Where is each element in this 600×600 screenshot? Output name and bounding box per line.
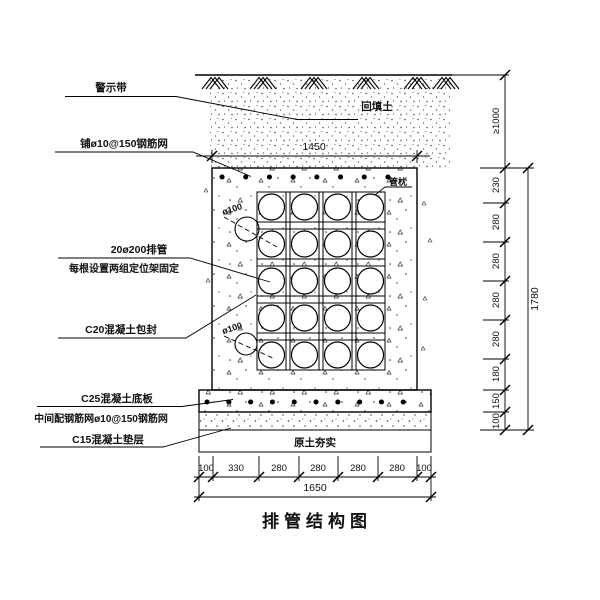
dim-right-seg: 280	[491, 331, 502, 347]
backfill-label: 回填土	[361, 100, 393, 113]
compacted-soil-label: 原土夯实	[294, 436, 336, 449]
dim-right-seg: 100	[491, 413, 502, 429]
pipe-circle	[259, 268, 285, 294]
dim-right-seg: 280	[491, 253, 502, 269]
dim-right-seg: 280	[491, 214, 502, 230]
pipe-circle	[292, 342, 318, 368]
dim-cover-depth: ≥1000	[491, 108, 502, 134]
dim-bottom-seg: 100	[416, 463, 432, 474]
pipe-circle	[292, 231, 318, 257]
callout-pipes-line2: 每根设置两组定位架固定	[69, 262, 179, 275]
dim-right-seg: 180	[491, 366, 502, 382]
pipe-circle	[259, 342, 285, 368]
callout-warning-tape: 警示带	[94, 81, 127, 94]
pipe-circle	[325, 231, 351, 257]
compacted-soil: 原土夯实	[199, 430, 431, 452]
dim-bottom-seg: 280	[389, 463, 405, 474]
pipe-circle	[259, 194, 285, 220]
pipe-circle	[292, 194, 318, 220]
base-slab	[199, 390, 431, 412]
callout-pipes-line1: 20ø200排管	[111, 243, 168, 256]
dim-right-seg: 230	[491, 177, 502, 193]
dimension-right: ≥1000 230 280 280 280 280 180 150 100 17…	[452, 70, 541, 435]
callout-top-mesh: 铺ø10@150钢筋网	[80, 137, 168, 150]
dim-top-width: 1450	[302, 141, 326, 153]
dim-bottom-seg: 280	[350, 463, 366, 474]
pipe-circle	[358, 231, 384, 257]
pipe-circle	[358, 268, 384, 294]
pipe-circle	[325, 342, 351, 368]
callout-base-slab-line1: C25混凝土底板	[81, 392, 153, 405]
dim-bottom-total: 1650	[303, 482, 327, 494]
pipe-circle	[259, 305, 285, 331]
dim-right-seg: 280	[491, 292, 502, 308]
dim-bottom-seg: 100	[198, 463, 214, 474]
dim-bottom-seg: 330	[228, 463, 244, 474]
pipe-circle	[358, 342, 384, 368]
dimension-bottom: 100 330 280 280 280 280 100 1650	[194, 456, 436, 502]
pipe-pillow-label: 管枕	[389, 176, 407, 187]
pipe-trench-structure-drawing: ø100 ø100 管枕 原土夯实 回填土 1450 100 330 280 2…	[0, 0, 600, 600]
pipe-circle	[325, 194, 351, 220]
pipe-circle	[292, 305, 318, 331]
phi100-circle-upper	[235, 217, 259, 241]
cushion-layer	[199, 412, 431, 430]
dim-bottom-seg: 280	[310, 463, 326, 474]
pipe-circle	[358, 194, 384, 220]
backfill-texture	[210, 76, 450, 168]
pipe-circle	[325, 268, 351, 294]
callout-base-slab-line2: 中间配钢筋网ø10@150钢筋网	[34, 412, 168, 425]
pipe-circle	[259, 231, 285, 257]
pipe-circle	[325, 305, 351, 331]
callout-encasement: C20混凝土包封	[85, 323, 157, 336]
dim-right-total: 1780	[529, 287, 541, 311]
dim-right-seg: 150	[491, 393, 502, 409]
pipe-circle	[292, 268, 318, 294]
dim-bottom-seg: 280	[271, 463, 287, 474]
phi100-circle-lower	[235, 333, 257, 355]
drawing-title: 排管结构图	[262, 511, 372, 531]
callout-cushion: C15混凝土垫层	[72, 433, 144, 446]
drawing-canvas: ø100 ø100 管枕 原土夯实 回填土 1450 100 330 280 2…	[0, 0, 600, 600]
pipe-circle	[358, 305, 384, 331]
